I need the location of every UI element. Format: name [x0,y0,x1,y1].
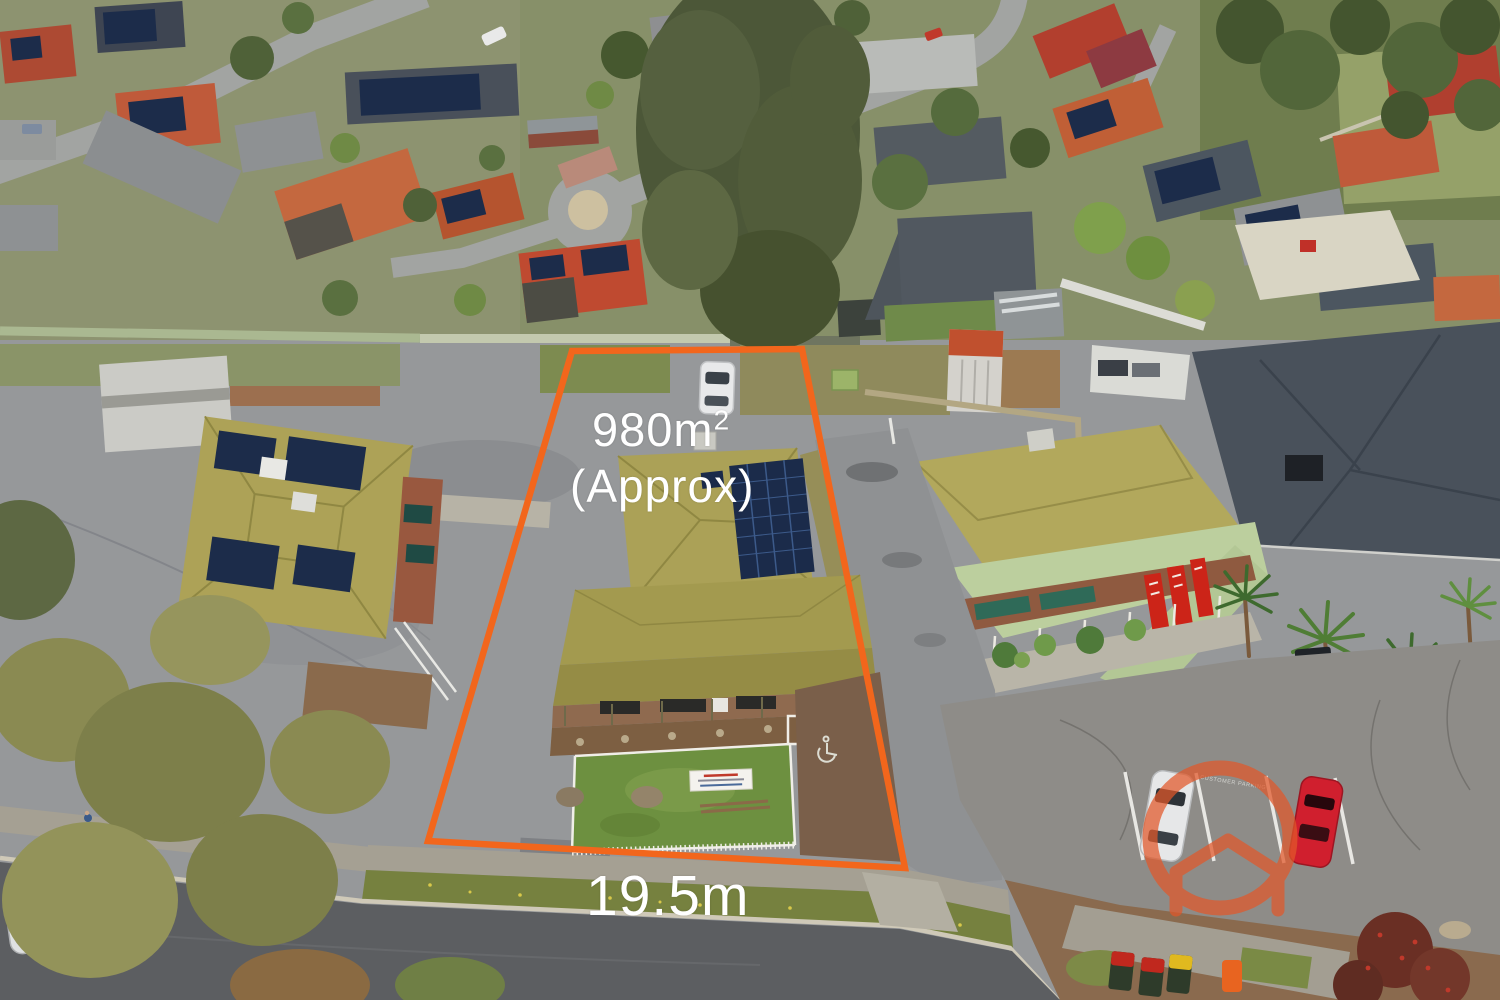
boulder [631,786,663,808]
area-label: 980m2 [592,406,730,453]
ac-unit [1285,455,1323,481]
pale-fence [420,334,730,343]
aerial-photo: CUSTOMER PARKING [0,0,1500,1000]
fence-sign [690,769,753,791]
shipping-container [947,329,1004,413]
utility-box [832,370,858,390]
orange-bin [1222,960,1242,992]
frontage-label: 19.5m [586,868,749,925]
grey-car-street [22,124,42,134]
approx-label: (Approx) [570,463,754,509]
boulder [556,787,584,807]
skylight-shed [994,288,1064,339]
area-superscript: 2 [714,404,731,435]
pedestrian [84,814,92,822]
area-value: 980m [592,403,714,456]
